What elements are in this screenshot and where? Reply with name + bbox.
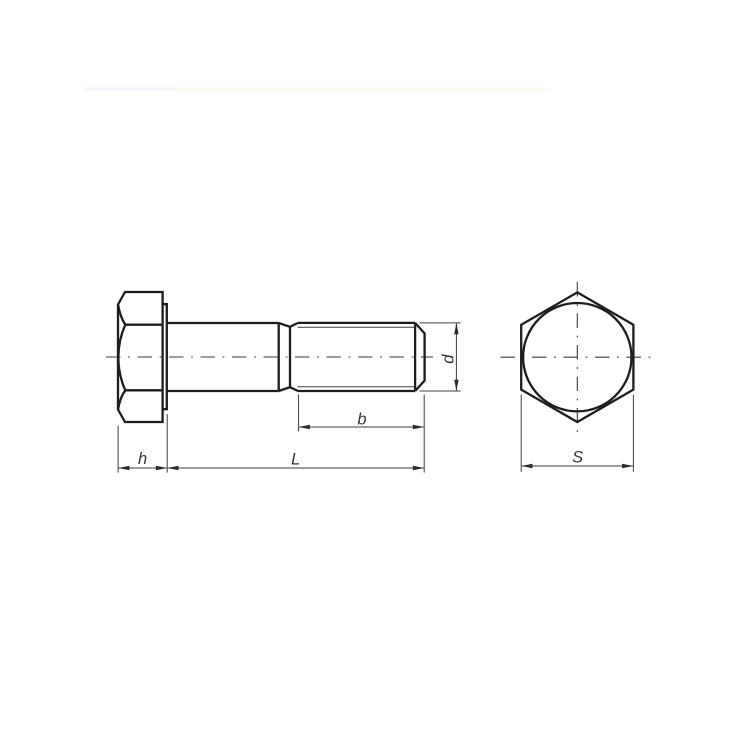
- svg-text:d: d: [439, 354, 457, 364]
- svg-text:b: b: [357, 410, 366, 428]
- svg-text:h: h: [138, 450, 147, 468]
- svg-text:S: S: [572, 448, 583, 466]
- svg-text:L: L: [291, 451, 300, 469]
